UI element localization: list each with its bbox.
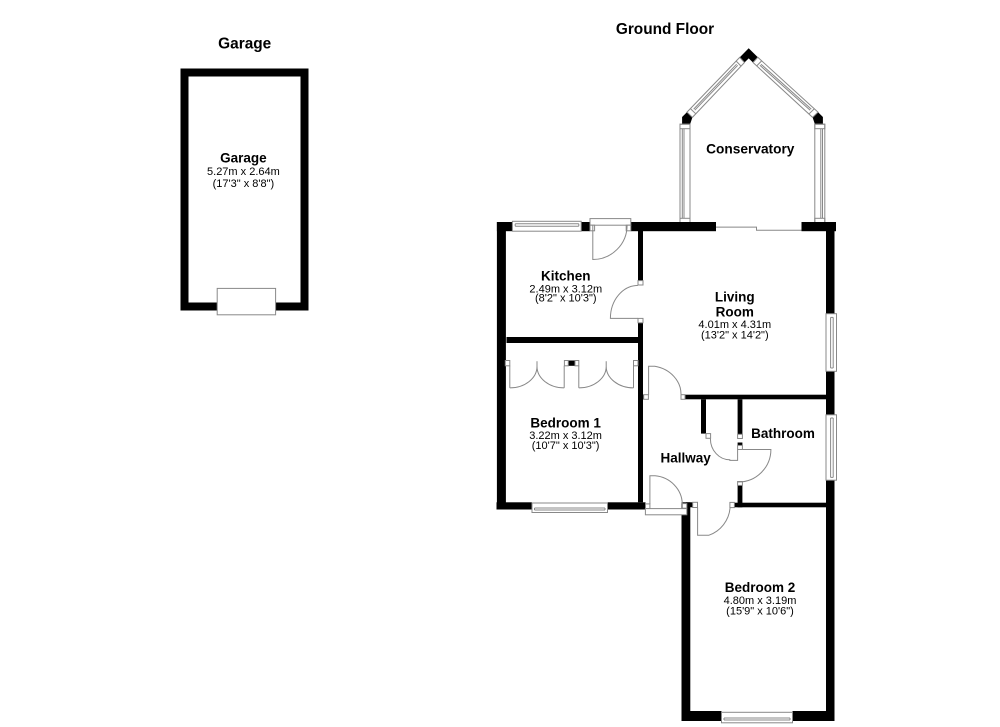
svg-text:(10'7" x 10'3"): (10'7" x 10'3"): [532, 440, 600, 452]
svg-text:(15'9" x 10'6"): (15'9" x 10'6"): [726, 606, 794, 618]
svg-text:Hallway: Hallway: [660, 450, 711, 465]
svg-text:Kitchen: Kitchen: [541, 268, 591, 283]
svg-text:Ground Floor: Ground Floor: [616, 21, 714, 38]
svg-text:Garage: Garage: [218, 36, 271, 53]
svg-text:Conservatory: Conservatory: [706, 141, 795, 156]
svg-text:Garage: Garage: [220, 151, 267, 166]
svg-text:5.27m x 2.64m: 5.27m x 2.64m: [207, 166, 280, 178]
svg-text:Bedroom 2: Bedroom 2: [725, 580, 796, 595]
svg-text:Bedroom 1: Bedroom 1: [530, 416, 601, 431]
svg-text:Bathroom: Bathroom: [751, 426, 815, 441]
svg-text:Living: Living: [715, 290, 755, 305]
svg-text:(17'3" x 8'8"): (17'3" x 8'8"): [213, 178, 275, 190]
svg-text:(8'2" x 10'3"): (8'2" x 10'3"): [535, 293, 597, 305]
svg-text:(13'2" x 14'2"): (13'2" x 14'2"): [701, 330, 769, 342]
svg-text:Room: Room: [716, 304, 754, 319]
